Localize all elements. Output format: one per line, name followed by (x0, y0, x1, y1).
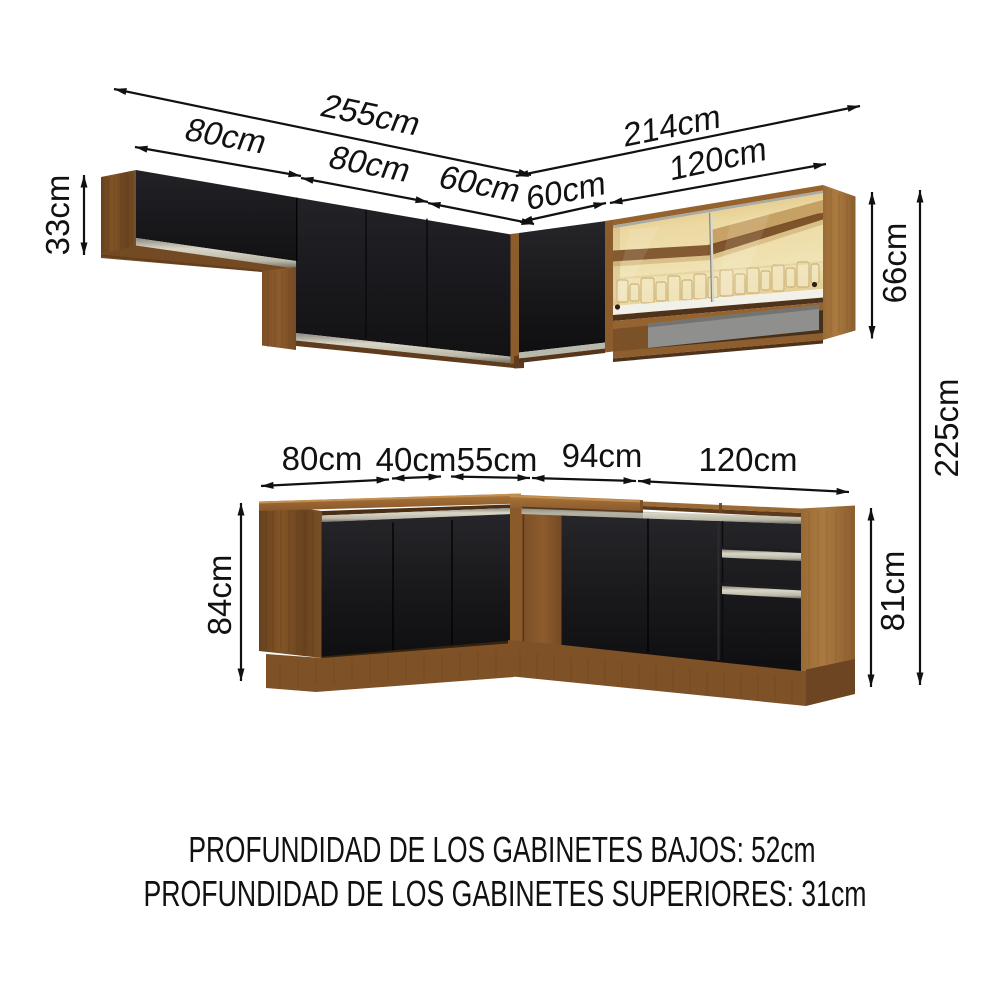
svg-text:PROFUNDIDAD DE LOS GABINETES B: PROFUNDIDAD DE LOS GABINETES BAJOS: 52cm (189, 829, 816, 870)
svg-text:66cm: 66cm (876, 223, 913, 304)
svg-text:PROFUNDIDAD DE LOS GABINETES S: PROFUNDIDAD DE LOS GABINETES SUPERIORES:… (144, 873, 867, 914)
svg-text:94cm: 94cm (562, 437, 643, 474)
svg-text:33cm: 33cm (39, 175, 76, 256)
svg-text:84cm: 84cm (201, 555, 238, 636)
svg-text:225cm: 225cm (928, 378, 965, 477)
svg-text:80cm: 80cm (282, 440, 363, 477)
svg-text:55cm: 55cm (457, 441, 538, 478)
svg-text:40cm: 40cm (376, 441, 457, 478)
svg-text:120cm: 120cm (698, 441, 797, 478)
svg-text:81cm: 81cm (874, 551, 911, 632)
